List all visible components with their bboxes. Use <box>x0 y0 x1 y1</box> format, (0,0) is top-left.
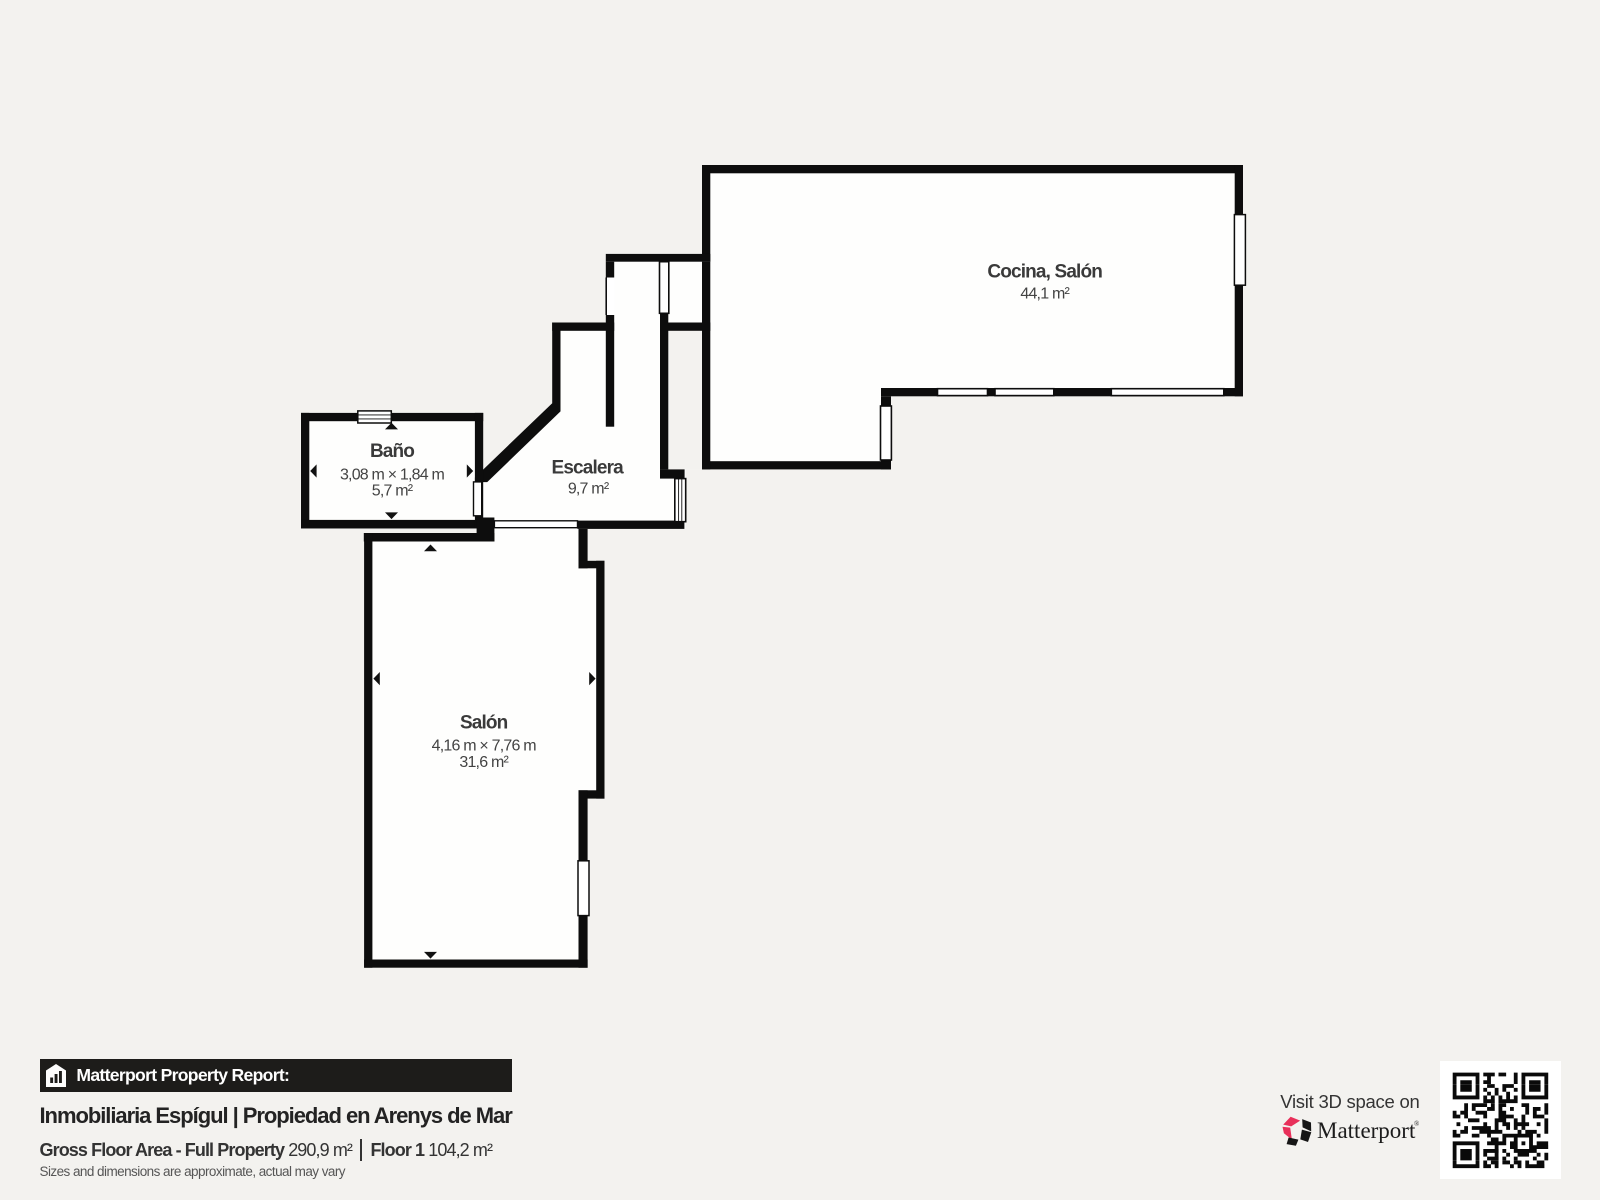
svg-text:44,1 m²: 44,1 m² <box>1020 285 1070 302</box>
svg-text:4,16 m × 7,76 m: 4,16 m × 7,76 m <box>432 738 537 755</box>
svg-text:31,6 m²: 31,6 m² <box>459 754 509 771</box>
svg-text:Matterport: Matterport <box>1317 1118 1416 1143</box>
svg-text:Baño: Baño <box>370 441 414 462</box>
svg-text:Escalera: Escalera <box>552 458 625 479</box>
svg-text:Cocina, Salón: Cocina, Salón <box>987 261 1102 282</box>
svg-text:5,7 m²: 5,7 m² <box>372 482 414 499</box>
svg-text:3,08 m × 1,84 m: 3,08 m × 1,84 m <box>340 466 445 483</box>
svg-text:Salón: Salón <box>460 713 508 734</box>
svg-text:®: ® <box>1414 1120 1420 1128</box>
svg-text:9,7 m²: 9,7 m² <box>568 481 610 498</box>
